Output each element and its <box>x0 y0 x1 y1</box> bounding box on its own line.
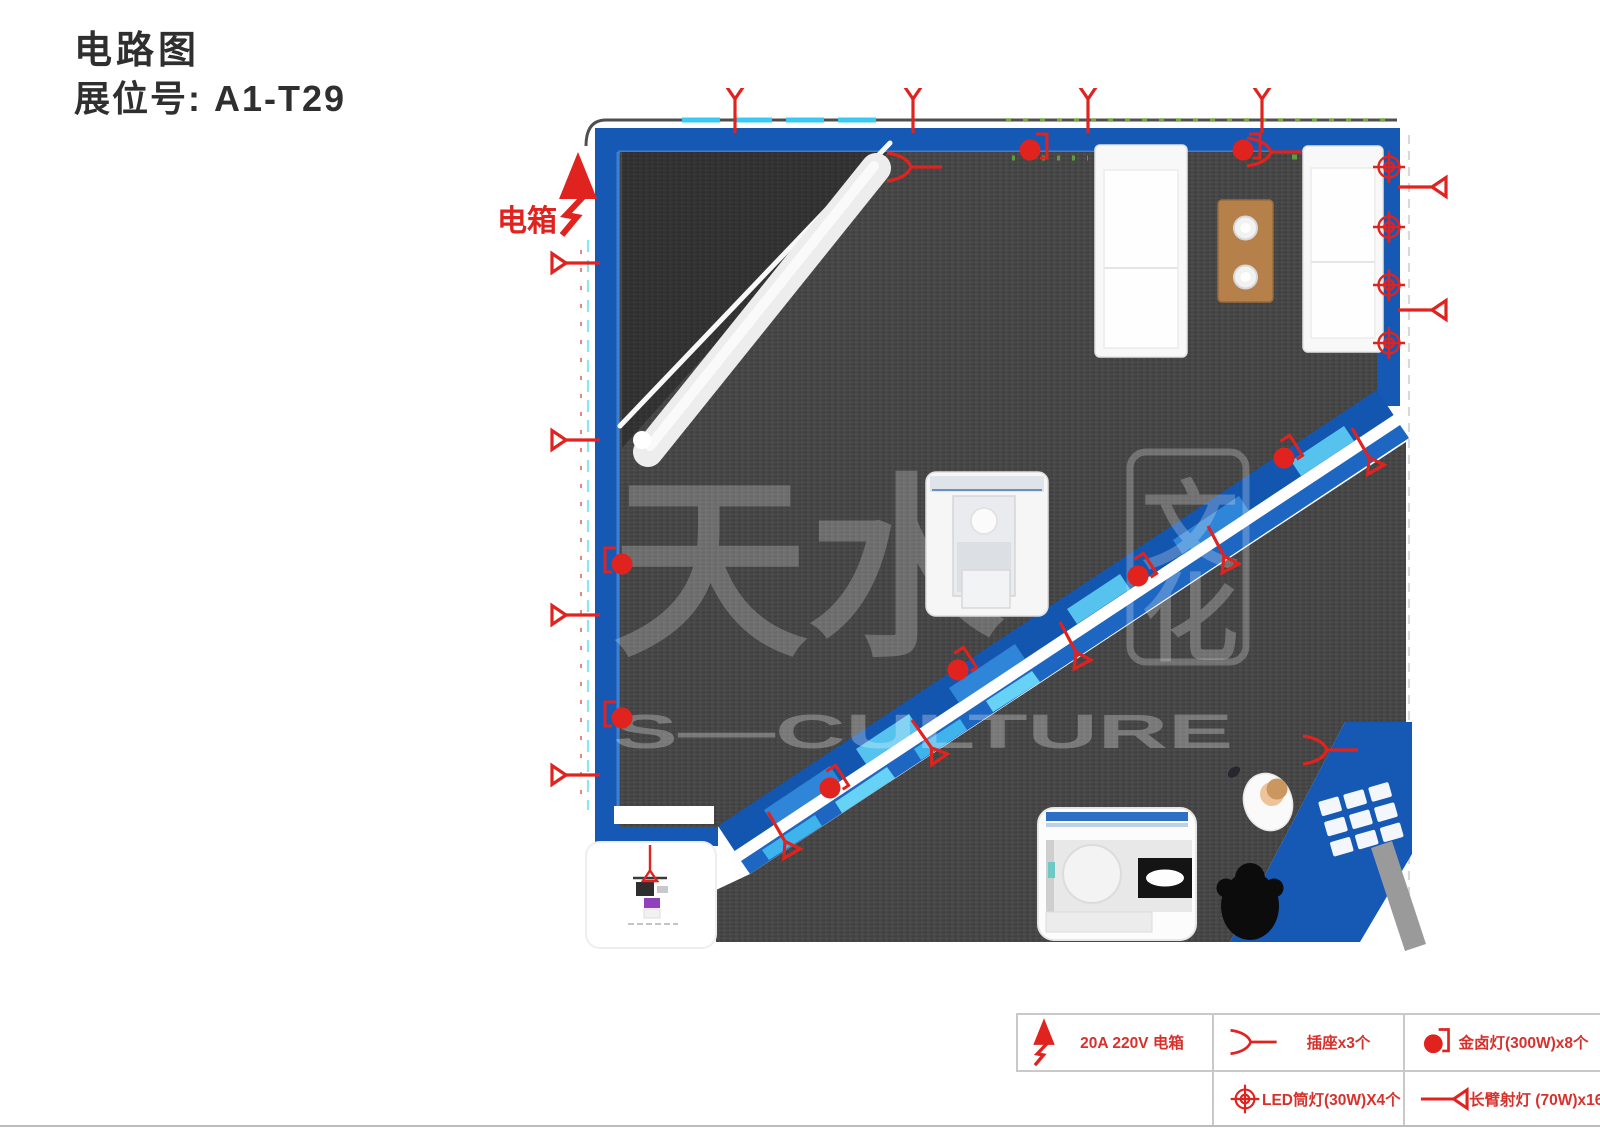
display-cabinet-2 <box>1303 146 1383 352</box>
reception-strip <box>614 806 714 824</box>
spotlight-symbol <box>552 766 600 785</box>
spotlight-symbol <box>1398 301 1446 320</box>
electric-box-label: 电箱 <box>497 205 557 238</box>
long-arm-spotlight-icon <box>1419 1087 1469 1111</box>
legend-label: 长臂射灯 (70W)x16个 <box>1469 1088 1600 1110</box>
page-bottom-rule <box>0 1125 1600 1127</box>
legend-label: 插座x3个 <box>1280 1031 1403 1053</box>
legend-item-led-downlight: LED筒灯(30W)X4个 <box>1214 1071 1403 1126</box>
spotlight-symbol <box>552 606 600 625</box>
display-cabinet-1 <box>1095 145 1187 357</box>
title-circuit-diagram: 电路图 <box>74 28 346 76</box>
legend-label: 20A 220V 电箱 <box>1058 1031 1212 1053</box>
legend-item-long-arm-spotlight: 长臂射灯 (70W)x16个 <box>1405 1071 1600 1126</box>
legend-item-electric-box: 20A 220V 电箱 <box>1016 1014 1212 1070</box>
spotlight-symbol <box>1253 88 1272 133</box>
center-showcase <box>926 472 1048 616</box>
electric-box-symbol <box>559 152 597 235</box>
watermark-boxed-bottom: 化 <box>1142 566 1238 673</box>
booth-number: 展位号: A1-T29 <box>74 76 346 123</box>
spotlight-symbol <box>552 431 600 450</box>
legend-label: LED筒灯(30W)X4个 <box>1262 1088 1407 1110</box>
spotlight-symbol <box>904 88 923 133</box>
coffee-table <box>1218 200 1273 302</box>
spotlight-symbol <box>1398 178 1446 197</box>
spotlight-symbol <box>552 254 600 273</box>
legend-item-metal-halide: 金卤灯(300W)x8个 <box>1405 1014 1600 1070</box>
led-downlight-icon <box>1228 1082 1262 1116</box>
desk-monitor <box>636 882 654 896</box>
desk-purple-item <box>644 898 660 908</box>
metal-halide-icon <box>1419 1025 1453 1059</box>
watermark-latin: S—CULTURE <box>613 706 1233 759</box>
spotlight-symbol <box>726 88 745 133</box>
floor-plan: 天水 文 化 S—CULTURE <box>480 88 1460 968</box>
legend-label: 金卤灯(300W)x8个 <box>1453 1031 1600 1053</box>
spotlight-symbol <box>1079 88 1098 133</box>
socket-icon <box>1228 1027 1280 1057</box>
page-title: 电路图 展位号: A1-T29 <box>74 28 346 122</box>
reception-counter <box>1038 808 1196 940</box>
electric-box-icon <box>1030 1016 1058 1068</box>
legend-item-socket: 插座x3个 <box>1214 1014 1403 1070</box>
